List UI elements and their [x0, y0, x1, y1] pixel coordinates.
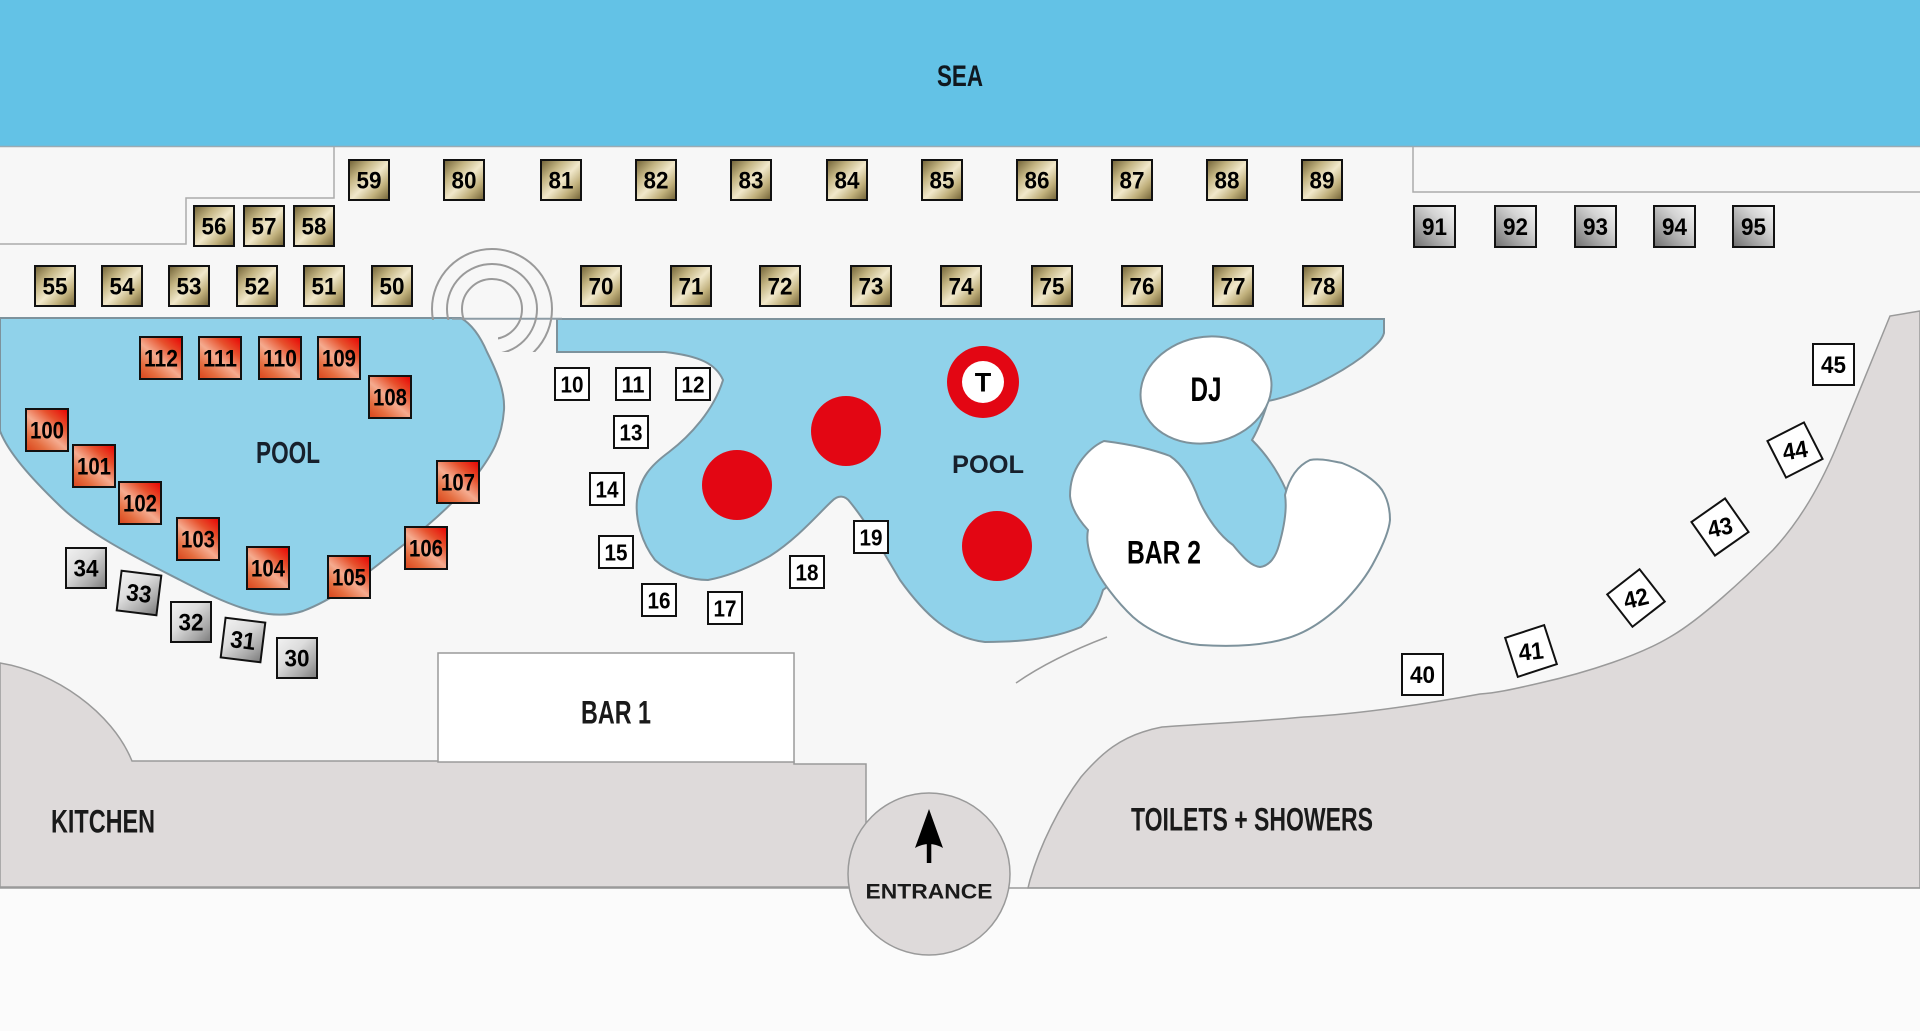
svg-text:110: 110 — [263, 346, 297, 373]
svg-text:59: 59 — [357, 168, 382, 195]
svg-text:106: 106 — [409, 536, 443, 563]
svg-text:100: 100 — [30, 418, 64, 445]
svg-text:15: 15 — [605, 539, 628, 565]
svg-text:BAR 1: BAR 1 — [581, 695, 651, 731]
svg-text:41: 41 — [1517, 637, 1545, 666]
svg-text:14: 14 — [596, 476, 619, 502]
svg-text:107: 107 — [441, 470, 475, 497]
svg-text:31: 31 — [229, 626, 257, 656]
svg-text:78: 78 — [1311, 274, 1336, 301]
svg-text:KITCHEN: KITCHEN — [51, 804, 155, 840]
svg-text:89: 89 — [1310, 168, 1335, 195]
svg-text:45: 45 — [1821, 352, 1846, 379]
svg-text:54: 54 — [110, 274, 136, 301]
svg-text:88: 88 — [1215, 168, 1240, 195]
svg-text:12: 12 — [682, 371, 705, 397]
svg-text:94: 94 — [1662, 214, 1688, 241]
svg-text:101: 101 — [77, 454, 111, 481]
svg-text:40: 40 — [1410, 662, 1435, 689]
svg-text:70: 70 — [589, 274, 614, 301]
svg-text:30: 30 — [285, 646, 310, 673]
svg-text:83: 83 — [739, 168, 764, 195]
svg-text:44: 44 — [1781, 436, 1811, 467]
svg-text:53: 53 — [177, 274, 202, 301]
svg-text:32: 32 — [179, 610, 204, 637]
svg-text:76: 76 — [1130, 274, 1155, 301]
svg-text:55: 55 — [43, 274, 68, 301]
svg-text:17: 17 — [714, 595, 737, 621]
svg-text:109: 109 — [322, 346, 356, 373]
svg-text:111: 111 — [203, 346, 237, 373]
svg-text:BAR 2: BAR 2 — [1127, 535, 1201, 571]
svg-text:91: 91 — [1422, 214, 1447, 241]
svg-text:72: 72 — [768, 274, 793, 301]
svg-text:19: 19 — [860, 524, 883, 550]
svg-text:105: 105 — [332, 565, 366, 592]
svg-text:POOL: POOL — [256, 435, 320, 470]
svg-text:T: T — [975, 368, 992, 398]
svg-text:103: 103 — [181, 527, 215, 554]
svg-text:81: 81 — [549, 168, 574, 195]
svg-text:73: 73 — [859, 274, 884, 301]
svg-text:13: 13 — [620, 419, 643, 445]
svg-text:SEA: SEA — [937, 60, 983, 93]
svg-text:92: 92 — [1503, 214, 1528, 241]
svg-text:DJ: DJ — [1191, 371, 1222, 409]
svg-text:ENTRANCE: ENTRANCE — [866, 881, 993, 904]
svg-text:18: 18 — [796, 559, 819, 585]
svg-text:56: 56 — [202, 214, 227, 241]
svg-text:80: 80 — [452, 168, 477, 195]
svg-text:71: 71 — [679, 274, 704, 301]
svg-text:82: 82 — [644, 168, 669, 195]
svg-text:58: 58 — [302, 214, 327, 241]
svg-text:34: 34 — [74, 556, 100, 583]
svg-text:75: 75 — [1040, 274, 1065, 301]
svg-text:95: 95 — [1741, 214, 1766, 241]
svg-text:108: 108 — [373, 385, 407, 412]
svg-text:85: 85 — [930, 168, 955, 195]
svg-text:16: 16 — [648, 587, 671, 613]
svg-text:86: 86 — [1025, 168, 1050, 195]
svg-text:84: 84 — [835, 168, 861, 195]
svg-text:51: 51 — [312, 274, 337, 301]
svg-text:112: 112 — [144, 346, 178, 373]
svg-text:104: 104 — [251, 556, 286, 583]
svg-text:33: 33 — [125, 579, 153, 609]
svg-text:57: 57 — [252, 214, 277, 241]
svg-text:50: 50 — [380, 274, 405, 301]
svg-text:52: 52 — [245, 274, 270, 301]
svg-text:102: 102 — [123, 491, 157, 518]
svg-text:74: 74 — [949, 274, 975, 301]
svg-text:77: 77 — [1221, 274, 1246, 301]
svg-text:87: 87 — [1120, 168, 1145, 195]
svg-text:TOILETS + SHOWERS: TOILETS + SHOWERS — [1131, 802, 1373, 838]
svg-text:93: 93 — [1583, 214, 1608, 241]
svg-text:11: 11 — [622, 371, 645, 397]
svg-text:10: 10 — [561, 371, 584, 397]
svg-text:POOL: POOL — [952, 451, 1024, 479]
